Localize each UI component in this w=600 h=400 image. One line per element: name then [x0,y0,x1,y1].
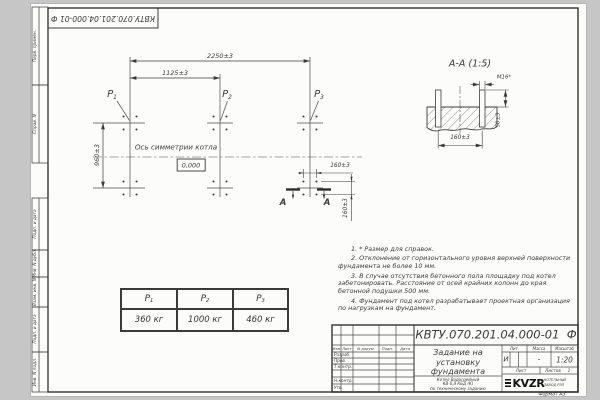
dim-160-vertical: 160±3 [344,198,350,218]
load-value-p3: 460 кг [233,309,288,331]
cut-letter-a-left: А [280,199,287,208]
logo-caption-line-1: КОТЕЛЬНЫЙ [544,378,566,382]
note-4: 4. Фундамент под котел разрабатывает про… [338,298,577,314]
rev-header-data: Дата [400,347,410,351]
p-subscript: 2 [228,95,232,101]
load-table-header-p1: P1 [121,289,177,309]
top-stamp-doc-number: КВТУ.070.201.04.000-01 Ф [51,14,155,22]
manufacturer-logo: KVZR [505,376,544,390]
product-line-3: по техническому заданию [430,387,486,391]
load-table: P1 P2 P3 360 кг 1000 кг 460 кг [120,288,289,332]
margin-label-inv-dubl: Инв. N дубл. [34,249,38,277]
rev-header-izm: Изм [333,347,341,351]
load-table-header-p2: P2 [177,289,233,309]
margin-label-sprav-n: Справ. N [34,114,38,134]
note-1: 1. * Размер для справок. [338,246,577,254]
load-table-header-p3: P3 [233,289,288,309]
row-label-tkontr: Т.контр. [334,365,352,369]
dim-50: 50±3 [496,113,501,128]
note-2: 2. Отклонение от горизонтального уровня … [338,255,577,271]
load-point-label-p3: P3 [314,90,324,100]
mass-header: Масса [533,347,546,351]
elevation-mark: 0,000 [177,159,206,172]
margin-label-inv-podl: Инв. N подл. [34,358,38,386]
bolt-thread-label: М16* [497,75,511,80]
doc-title-line-2: установку [436,357,480,365]
load-point-label-p2: P2 [222,90,232,100]
p-subscript: 3 [262,298,265,304]
scale-value: 1:20 [556,356,573,364]
row-label-nkontr: Н.контр. [334,378,353,382]
rev-header-list: Лист [342,347,352,351]
rev-header-podp: Подп. [382,347,394,351]
doc-title-line-3: фундамента [431,367,485,375]
drawing-sheet-page: { "page": { "format_label": "Формат А3" … [0,0,600,400]
margin-label-podp-data-1: Подп. и дата [34,209,38,238]
row-label-utv: Утв. [334,386,343,390]
p-subscript: 2 [206,298,209,304]
lit-header: Лит. [510,347,519,351]
scale-header: Масштаб [555,347,574,351]
dim-2250: 2250±3 [207,53,233,60]
margin-label-podp-data-2: Подп. и дата [34,314,38,343]
section-title: А-А (1:5) [449,59,491,69]
dim-1125: 1125±3 [162,70,188,77]
p-subscript: 3 [320,95,324,101]
row-label-razrab: Разраб. [334,353,350,357]
p-subscript: 1 [113,95,117,101]
title-block-doc-number: КВТУ.070.201.04.000-01 Ф [415,329,576,341]
rev-header-ndocum: N докум. [357,347,375,351]
margin-label-perv-primen: Перв. примен. [34,30,38,62]
load-value-p1: 360 кг [121,309,177,331]
dim-160-section: 160±3 [450,136,470,142]
doc-title-line-1: Задание на [433,347,483,355]
format-label: Формат А3 [538,393,565,398]
dim-960: 960±3 [94,144,101,166]
dim-160-horizontal: 160±3 [330,164,350,170]
load-value-p2: 1000 кг [177,309,233,331]
p-subscript: 1 [150,298,153,304]
load-point-label-p1: P1 [107,90,117,100]
mass-value: - [538,356,541,363]
technical-notes: 1. * Размер для справок. 2. Отклонение о… [338,246,577,315]
margin-label-vzam-inv: Взам. инв. N [34,278,38,306]
sheets-value: 1 [568,368,571,372]
sheets-label: Листов [545,368,561,372]
note-3: 3. В случае отсутствия бетонного пола пл… [338,273,577,296]
boiler-axis-label: Ось симметрии котла [135,143,217,150]
lit-value: И [503,356,508,363]
logo-text: KVZR [513,377,545,390]
row-label-prov: Пров. [334,359,346,363]
logo-caption-line-2: ЗАВОД РЭП [544,383,564,387]
logo-bars-icon [505,379,511,388]
cut-letter-a-right: А [324,199,331,208]
sheet-label: Лист [516,368,527,372]
